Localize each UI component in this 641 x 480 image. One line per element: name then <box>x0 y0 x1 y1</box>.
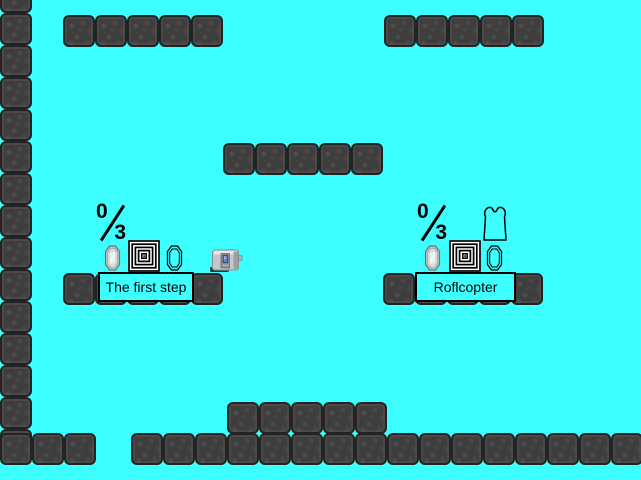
tile-block <box>0 141 32 173</box>
tile-block <box>159 15 191 47</box>
tile-block <box>515 433 547 465</box>
tile-block <box>191 15 223 47</box>
secret-count-current: 0 <box>96 200 108 224</box>
tile-block <box>259 402 291 434</box>
tile-block <box>319 143 351 175</box>
tile-block <box>0 397 32 429</box>
tile-block <box>227 402 259 434</box>
secret-count-current: 0 <box>417 200 429 224</box>
tile-block <box>0 237 32 269</box>
tile-block <box>63 15 95 47</box>
tile-block <box>0 205 32 237</box>
gem-filled-icon <box>104 245 121 271</box>
tile-block <box>0 333 32 365</box>
tile-block <box>163 433 195 465</box>
gem-outline-icon <box>166 245 183 271</box>
tile-block <box>63 273 95 305</box>
tile-block <box>0 77 32 109</box>
gem-filled-icon <box>424 245 441 271</box>
spiral-portal-icon[interactable] <box>449 240 481 272</box>
tile-block <box>0 45 32 77</box>
shirt-outline-icon <box>478 205 512 242</box>
game-viewport: 0 3 The first step 0 3 Roflcopter <box>0 0 641 480</box>
tile-block <box>32 433 64 465</box>
tile-block <box>255 143 287 175</box>
tile-block <box>480 15 512 47</box>
tile-block <box>416 15 448 47</box>
tile-block <box>323 433 355 465</box>
tile-block <box>383 273 415 305</box>
tile-block <box>483 433 515 465</box>
tile-block <box>291 433 323 465</box>
tile-block <box>64 433 96 465</box>
tile-block <box>611 433 641 465</box>
tile-block <box>223 143 255 175</box>
tile-block <box>291 402 323 434</box>
tile-block <box>355 433 387 465</box>
level-name-label[interactable]: The first step <box>98 272 194 302</box>
tile-block <box>0 301 32 333</box>
tile-block <box>0 13 32 45</box>
secret-counter: 0 3 <box>416 203 450 243</box>
tile-block <box>387 433 419 465</box>
tile-block <box>287 143 319 175</box>
tile-block <box>323 402 355 434</box>
tile-block <box>579 433 611 465</box>
secret-counter: 0 3 <box>95 203 129 243</box>
tile-block <box>547 433 579 465</box>
secret-count-total: 3 <box>435 221 447 245</box>
tile-block <box>127 15 159 47</box>
tile-block <box>0 0 32 13</box>
tile-block <box>0 173 32 205</box>
tile-block <box>419 433 451 465</box>
secret-count-total: 3 <box>114 221 126 245</box>
tile-block <box>131 433 163 465</box>
tile-block <box>448 15 480 47</box>
tile-block <box>451 433 483 465</box>
tile-block <box>355 402 387 434</box>
tile-block <box>384 15 416 47</box>
tile-block <box>0 109 32 141</box>
tile-block <box>351 143 383 175</box>
tile-block <box>195 433 227 465</box>
tile-block <box>227 433 259 465</box>
level-name-label[interactable]: Roflcopter <box>415 272 516 302</box>
tile-block <box>0 365 32 397</box>
tile-block <box>191 273 223 305</box>
tile-block <box>95 15 127 47</box>
gem-outline-icon <box>486 245 503 271</box>
tile-block <box>512 15 544 47</box>
spiral-portal-icon[interactable] <box>128 240 160 272</box>
tile-block <box>0 269 32 301</box>
tile-block <box>0 433 32 465</box>
tile-block <box>259 433 291 465</box>
toaster-icon <box>210 246 244 274</box>
